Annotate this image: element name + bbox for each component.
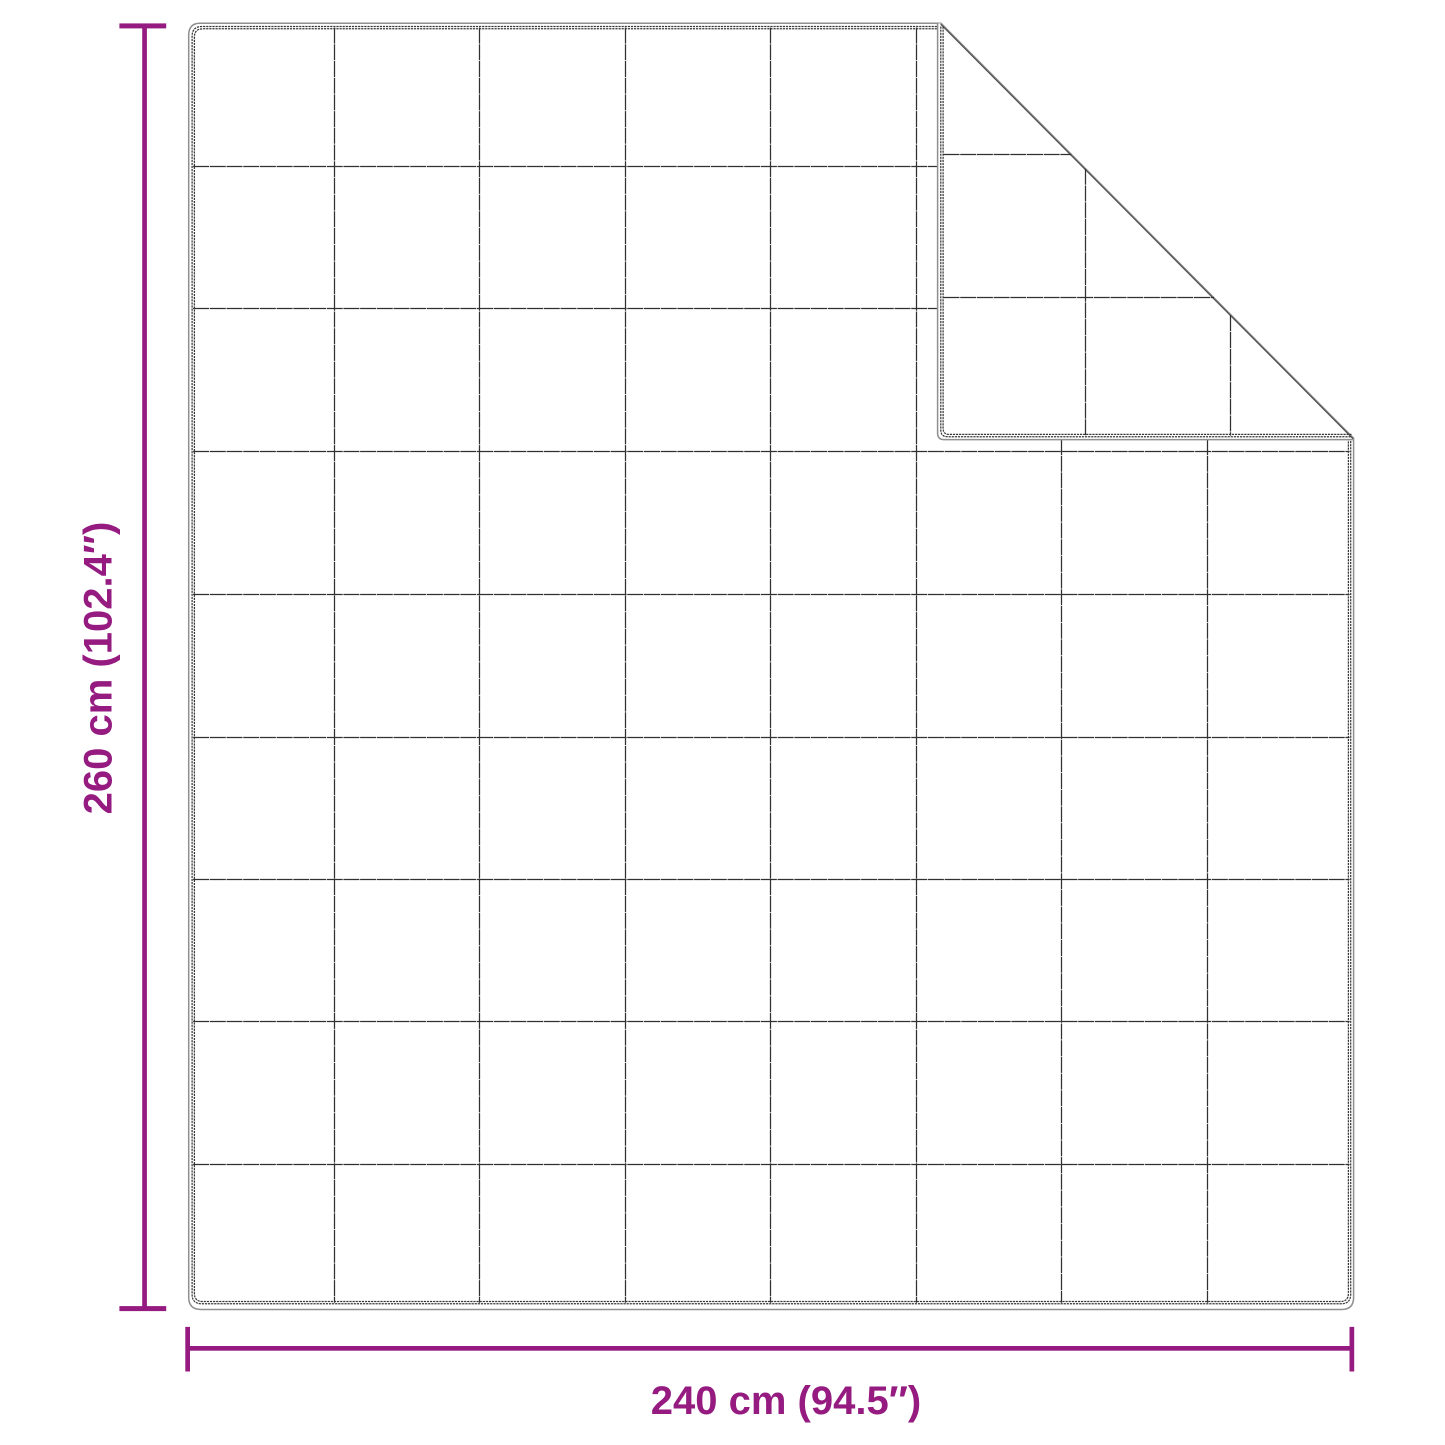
svg-text:260 cm (102.4″): 260 cm (102.4″) <box>76 522 120 815</box>
svg-text:240 cm (94.5″): 240 cm (94.5″) <box>651 1379 921 1423</box>
